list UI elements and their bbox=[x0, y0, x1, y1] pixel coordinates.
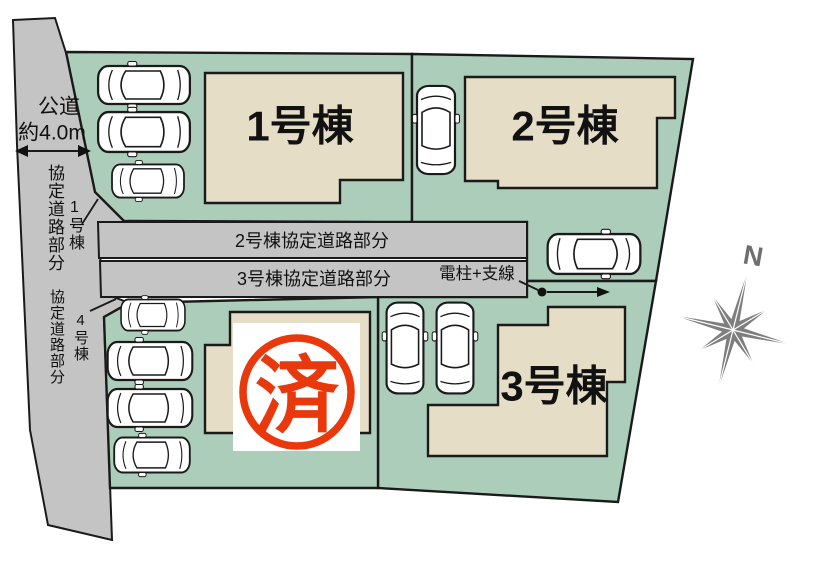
car-icon bbox=[121, 296, 185, 335]
car-icon bbox=[98, 62, 190, 109]
car-icon bbox=[108, 385, 193, 432]
site-plan: 1号棟 2号棟 3号棟 2号棟協定道路部分 3号棟協定道路部分 電柱+支線 公道… bbox=[0, 0, 832, 572]
car-icon bbox=[108, 338, 193, 385]
car-icon bbox=[382, 303, 428, 394]
building-2-label: 2号棟 bbox=[511, 103, 619, 150]
car-icon bbox=[98, 107, 190, 156]
road-width-label: 約4.0m bbox=[18, 122, 86, 145]
car-icon bbox=[112, 161, 184, 202]
compass-north-label: N bbox=[741, 240, 765, 273]
building-3-label: 3号棟 bbox=[500, 363, 608, 410]
agreement-road-label-bottom: 協定道路部分 bbox=[49, 289, 64, 385]
strip-label-building-3: 3号棟協定道路部分 bbox=[237, 269, 391, 289]
utility-pole-dot bbox=[538, 288, 547, 297]
sold-stamp-text: 済 bbox=[255, 349, 340, 443]
car-icon bbox=[413, 86, 460, 174]
compass-rose-icon bbox=[660, 257, 805, 402]
utility-pole-label: 電柱+支線 bbox=[439, 264, 515, 283]
car-icon bbox=[432, 303, 478, 394]
road-name-label: 公道 bbox=[38, 96, 80, 119]
car-icon bbox=[114, 433, 190, 476]
car-icon bbox=[548, 229, 641, 278]
site-plan-svg: 1号棟 2号棟 3号棟 2号棟協定道路部分 3号棟協定道路部分 電柱+支線 公道… bbox=[0, 0, 832, 572]
pointer-label-building-1: 1号棟 bbox=[66, 199, 82, 251]
building-1-label: 1号棟 bbox=[246, 103, 354, 150]
pointer-label-building-4: 4号棟 bbox=[73, 312, 88, 362]
strip-label-building-2: 2号棟協定道路部分 bbox=[235, 231, 389, 251]
agreement-road-label-top: 協定道路部分 bbox=[46, 164, 63, 272]
